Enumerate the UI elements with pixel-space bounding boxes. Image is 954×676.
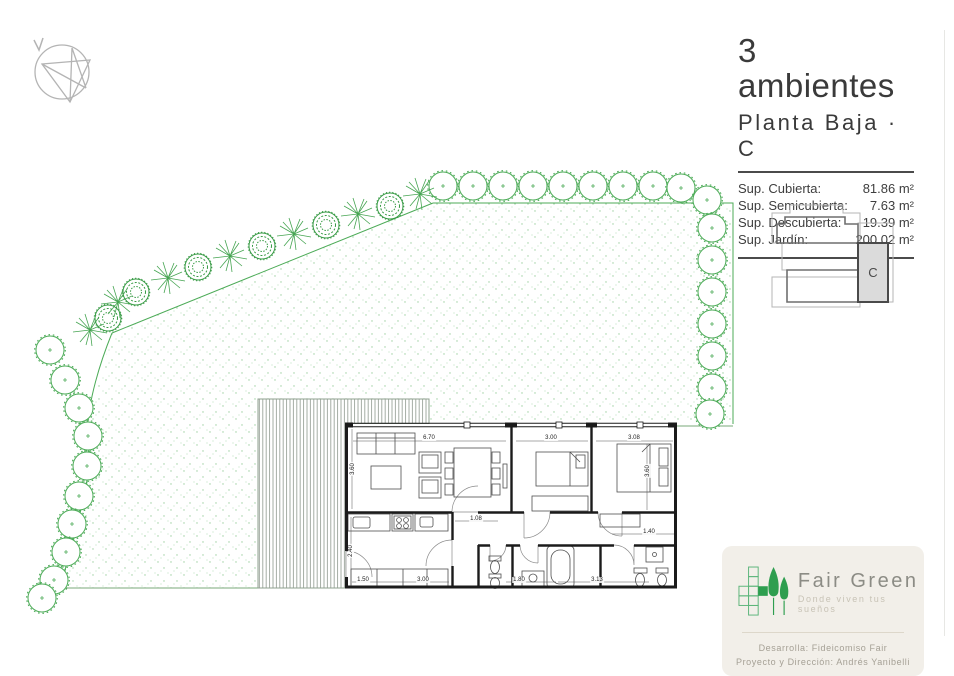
brand-tagline: Donde viven tus sueños	[798, 594, 924, 614]
shrub-icon	[341, 198, 375, 230]
plan-subtitle: Planta Baja · C	[738, 110, 914, 162]
credit-developer: Desarrolla: Fideicomiso Fair	[722, 641, 924, 655]
sheet-border	[944, 30, 945, 636]
tree-icon	[578, 171, 609, 202]
tree-icon	[638, 171, 669, 202]
floor-plan-sheet: 3 ambientes Planta Baja · C Sup. Cubiert…	[0, 0, 954, 670]
key-plan: C	[765, 200, 905, 315]
credit-architect: Proyecto y Dirección: Andrés Yanibelli	[722, 655, 924, 669]
tree-icon	[35, 335, 66, 366]
tree-icon	[428, 171, 459, 202]
plan-title: 3 ambientes	[738, 34, 914, 103]
north-arrow-icon	[18, 22, 110, 114]
key-plan-unit-label: C	[868, 265, 877, 280]
surface-area-label: Sup. Cubierta:	[738, 180, 821, 197]
surface-area-row: Sup. Cubierta:81.86 m²	[738, 180, 914, 197]
divider	[738, 171, 914, 173]
tree-icon	[184, 253, 212, 281]
divider	[742, 632, 904, 633]
shrub-icon	[151, 262, 185, 294]
tree-icon	[548, 171, 579, 202]
tree-icon	[248, 232, 276, 260]
tree-icon	[312, 211, 340, 239]
house-plan	[345, 422, 677, 589]
branding-card: Fair Green Donde viven tus sueños Desarr…	[722, 546, 924, 676]
tree-icon	[488, 171, 519, 202]
tree-icon	[376, 192, 404, 220]
tree-icon	[50, 365, 81, 396]
shrub-icon	[213, 240, 247, 272]
tree-icon	[122, 278, 150, 306]
fair-green-logo-icon	[738, 564, 790, 620]
brand-name: Fair Green	[798, 571, 924, 591]
tree-icon	[608, 171, 639, 202]
tree-icon	[518, 171, 549, 202]
tree-icon	[458, 171, 489, 202]
surface-area-value: 81.86 m²	[863, 180, 914, 197]
shrub-icon	[277, 218, 311, 250]
